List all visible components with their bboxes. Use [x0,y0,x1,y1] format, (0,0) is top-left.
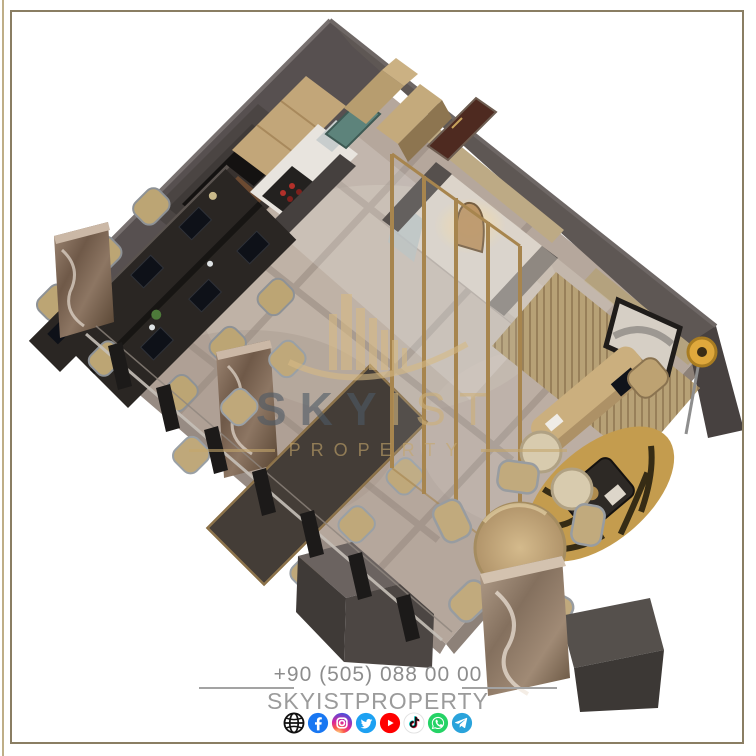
whatsapp-icon [427,712,449,734]
youtube-icon [379,712,401,734]
twitter-icon [355,712,377,734]
social-icons-row [0,712,756,734]
floorplan-render [0,0,756,756]
website-icon [283,712,305,734]
poster-canvas: SKYIST PROPERTY +90 (505) 088 00 00 SKYI… [0,0,756,756]
facebook-icon [307,712,329,734]
instagram-icon [331,712,353,734]
brand-handle: SKYISTPROPERTY [0,688,756,715]
telegram-icon [451,712,473,734]
footer-divider-right [462,687,557,689]
tiktok-icon [403,712,425,734]
phone-number: +90 (505) 088 00 00 [0,663,756,687]
left-accent-line [2,0,4,756]
footer-divider-left [199,687,294,689]
guest-chair [552,469,592,509]
